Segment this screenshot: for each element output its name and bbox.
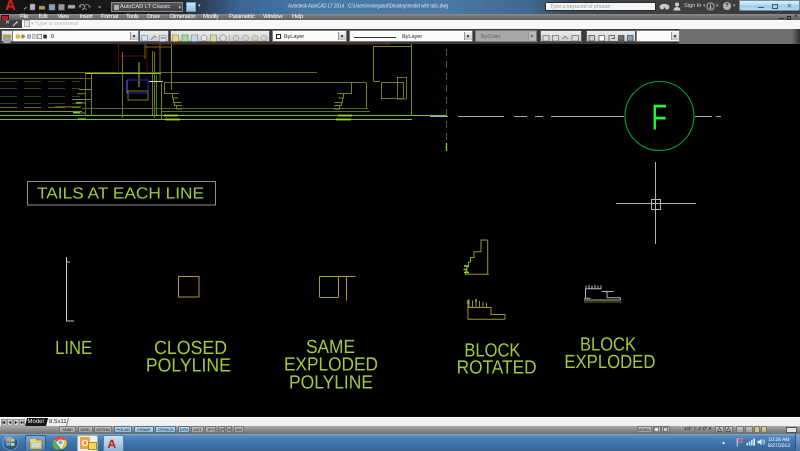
svg-text:EXPLODED: EXPLODED <box>564 352 655 373</box>
svg-text:F: F <box>652 97 668 138</box>
svg-text:TAILS AT EACH LINE: TAILS AT EACH LINE <box>37 186 204 203</box>
svg-text:LINE: LINE <box>55 338 92 359</box>
svg-text:POLYLINE: POLYLINE <box>146 355 231 376</box>
svg-text:ROTATED: ROTATED <box>457 357 537 378</box>
svg-text:POLYLINE: POLYLINE <box>289 373 373 394</box>
